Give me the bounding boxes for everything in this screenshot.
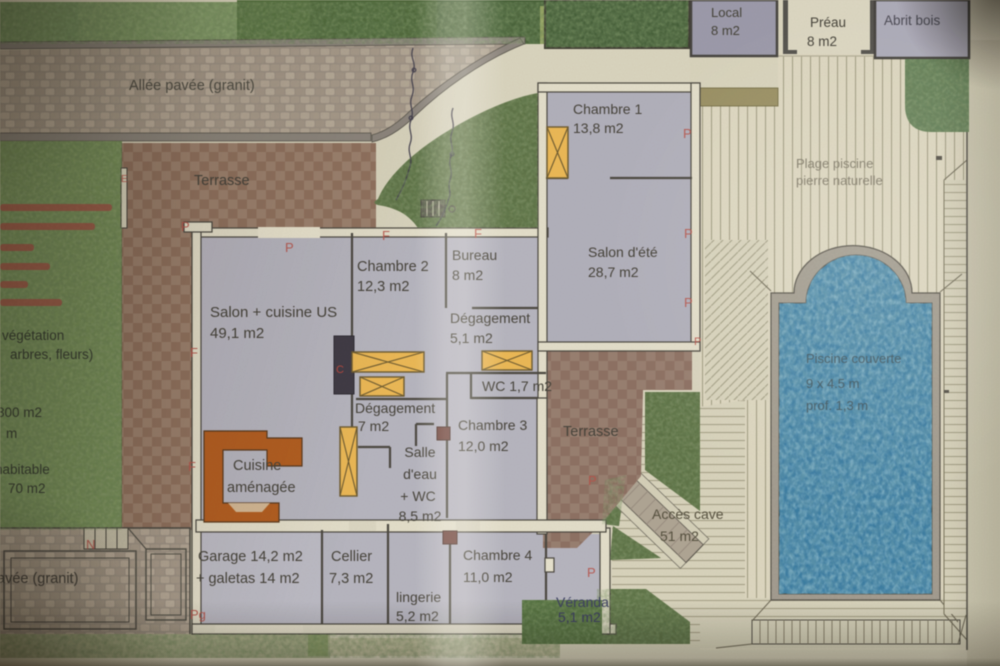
svg-text:Véranda: Véranda [556,594,609,610]
svg-text:800 m2: 800 m2 [0,405,42,420]
svg-text:9 x 4.5 m: 9 x 4.5 m [806,376,859,391]
svg-text:5,1 m2: 5,1 m2 [558,609,601,625]
svg-text:70 m2: 70 m2 [8,481,46,496]
svg-text:végétation: végétation [2,328,64,343]
svg-text:arbres, fleurs): arbres, fleurs) [10,347,93,362]
svg-text:m: m [6,426,17,441]
svg-text:habitable: habitable [0,462,50,477]
svg-text:prof. 1,3 m: prof. 1,3 m [806,398,868,413]
svg-text:Piscine couverte: Piscine couverte [806,351,901,366]
